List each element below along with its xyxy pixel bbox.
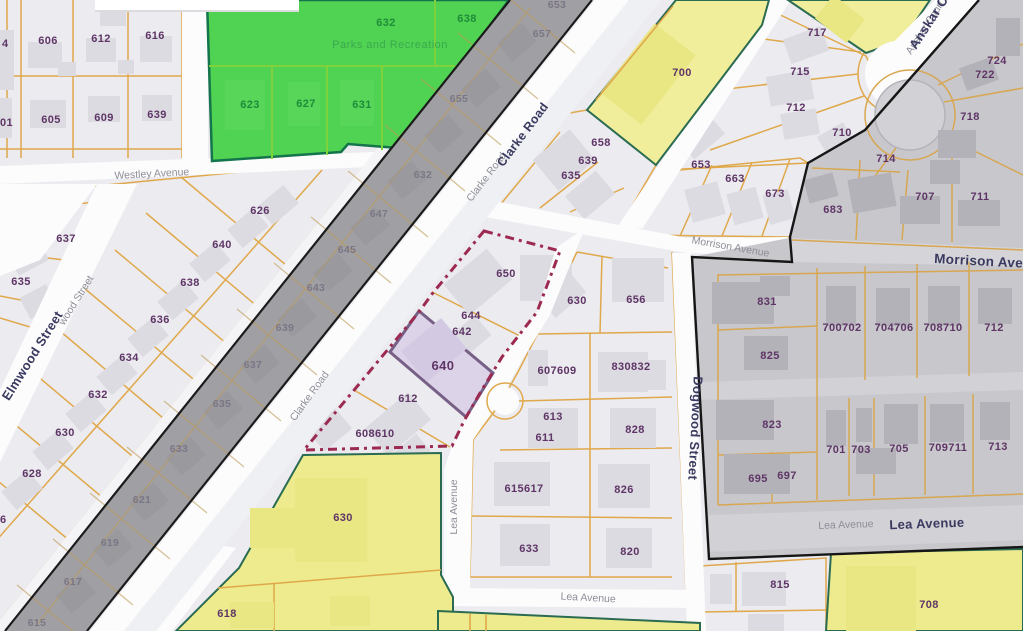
- svg-text:637: 637: [56, 233, 76, 245]
- svg-text:820: 820: [620, 546, 640, 558]
- svg-text:713: 713: [988, 441, 1008, 453]
- svg-text:4: 4: [2, 38, 9, 50]
- svg-text:673: 673: [765, 188, 785, 200]
- svg-text:643: 643: [307, 282, 325, 294]
- svg-text:644: 644: [461, 310, 481, 322]
- svg-text:718: 718: [960, 111, 980, 123]
- svg-text:708710: 708710: [923, 322, 962, 334]
- svg-text:630: 630: [567, 295, 587, 307]
- svg-text:707: 707: [915, 191, 935, 203]
- svg-text:701: 701: [826, 444, 846, 456]
- svg-text:683: 683: [823, 204, 843, 216]
- svg-text:640: 640: [212, 239, 232, 251]
- svg-text:606: 606: [38, 35, 58, 47]
- svg-text:618: 618: [217, 608, 237, 620]
- svg-text:6: 6: [0, 514, 7, 526]
- svg-text:705: 705: [889, 443, 909, 455]
- svg-text:Lea Avenue: Lea Avenue: [448, 479, 460, 534]
- svg-text:653: 653: [548, 0, 566, 11]
- svg-text:635: 635: [213, 398, 231, 410]
- svg-text:712: 712: [984, 322, 1004, 334]
- svg-text:612: 612: [91, 33, 111, 45]
- svg-text:612: 612: [398, 393, 418, 405]
- svg-text:639: 639: [578, 155, 598, 167]
- svg-text:01: 01: [0, 117, 13, 129]
- svg-text:703: 703: [851, 444, 871, 456]
- svg-text:619: 619: [101, 537, 119, 549]
- svg-text:623: 623: [240, 99, 260, 111]
- svg-text:656: 656: [626, 294, 646, 306]
- svg-text:633: 633: [519, 543, 539, 555]
- svg-text:Lea Avenue: Lea Avenue: [889, 515, 964, 533]
- svg-text:823: 823: [762, 419, 782, 431]
- svg-text:635: 635: [561, 170, 581, 182]
- svg-text:815: 815: [770, 579, 790, 591]
- svg-text:642: 642: [452, 326, 472, 338]
- svg-text:697: 697: [777, 470, 797, 482]
- svg-text:714: 714: [876, 153, 896, 165]
- svg-text:627: 627: [296, 98, 316, 110]
- svg-text:617: 617: [64, 576, 82, 588]
- svg-text:635: 635: [11, 276, 31, 288]
- svg-text:621: 621: [133, 494, 151, 506]
- svg-text:653: 653: [691, 159, 711, 171]
- svg-text:628: 628: [22, 468, 42, 480]
- svg-text:645: 645: [338, 244, 356, 256]
- svg-text:828: 828: [625, 424, 645, 436]
- svg-text:639: 639: [147, 109, 167, 121]
- svg-text:830832: 830832: [611, 361, 650, 373]
- svg-text:632: 632: [376, 17, 396, 29]
- svg-text:632: 632: [88, 389, 108, 401]
- svg-text:616: 616: [145, 30, 165, 42]
- svg-text:831: 831: [757, 296, 777, 308]
- svg-text:632: 632: [414, 169, 432, 181]
- svg-text:609: 609: [94, 112, 114, 124]
- svg-text:630: 630: [55, 427, 75, 439]
- svg-text:637: 637: [244, 359, 262, 371]
- svg-text:710: 710: [832, 127, 852, 139]
- svg-text:631: 631: [352, 99, 372, 111]
- svg-text:638: 638: [180, 277, 200, 289]
- svg-text:663: 663: [725, 173, 745, 185]
- svg-text:712: 712: [786, 102, 806, 114]
- svg-text:647: 647: [370, 208, 388, 220]
- svg-text:640: 640: [432, 358, 455, 373]
- svg-text:708: 708: [919, 599, 939, 611]
- svg-text:825: 825: [760, 350, 780, 362]
- svg-text:639: 639: [276, 322, 294, 334]
- svg-text:700702: 700702: [822, 322, 861, 334]
- svg-text:626: 626: [250, 205, 270, 217]
- svg-text:638: 638: [457, 13, 477, 25]
- svg-text:608610: 608610: [355, 428, 394, 440]
- svg-text:658: 658: [591, 137, 611, 149]
- svg-text:630: 630: [333, 512, 353, 524]
- svg-text:704706: 704706: [874, 322, 913, 334]
- svg-text:717: 717: [807, 27, 827, 39]
- svg-text:700: 700: [672, 67, 692, 79]
- svg-text:634: 634: [119, 352, 139, 364]
- svg-text:633: 633: [170, 443, 188, 455]
- svg-text:722: 722: [975, 69, 995, 81]
- svg-text:826: 826: [614, 484, 634, 496]
- svg-text:613: 613: [543, 411, 563, 423]
- svg-text:615: 615: [28, 617, 46, 629]
- svg-text:709711: 709711: [929, 442, 968, 454]
- svg-text:655: 655: [450, 93, 468, 105]
- svg-text:605: 605: [41, 114, 61, 126]
- svg-text:715: 715: [790, 66, 810, 78]
- svg-text:657: 657: [533, 28, 551, 40]
- svg-text:611: 611: [536, 432, 555, 444]
- svg-text:695: 695: [748, 473, 768, 485]
- svg-text:650: 650: [496, 268, 516, 280]
- svg-text:636: 636: [150, 314, 170, 326]
- svg-text:615617: 615617: [504, 483, 543, 495]
- svg-text:724: 724: [987, 55, 1007, 67]
- svg-text:Lea Avenue: Lea Avenue: [818, 518, 874, 532]
- svg-text:Parks and Recreation: Parks and Recreation: [332, 39, 448, 51]
- svg-text:711: 711: [971, 191, 990, 203]
- svg-text:607609: 607609: [537, 365, 576, 377]
